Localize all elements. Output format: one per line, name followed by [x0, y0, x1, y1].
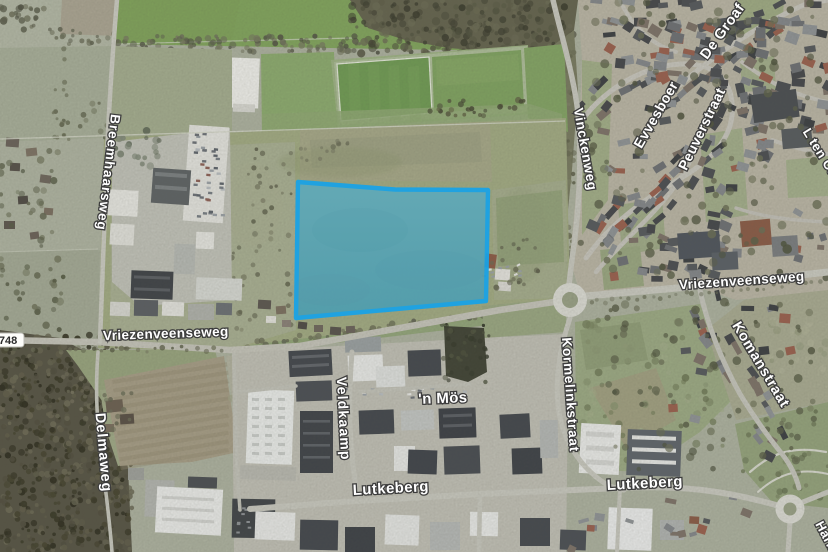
svg-text:748: 748: [0, 335, 17, 347]
svg-text:'n Mös: 'n Mös: [418, 389, 468, 408]
